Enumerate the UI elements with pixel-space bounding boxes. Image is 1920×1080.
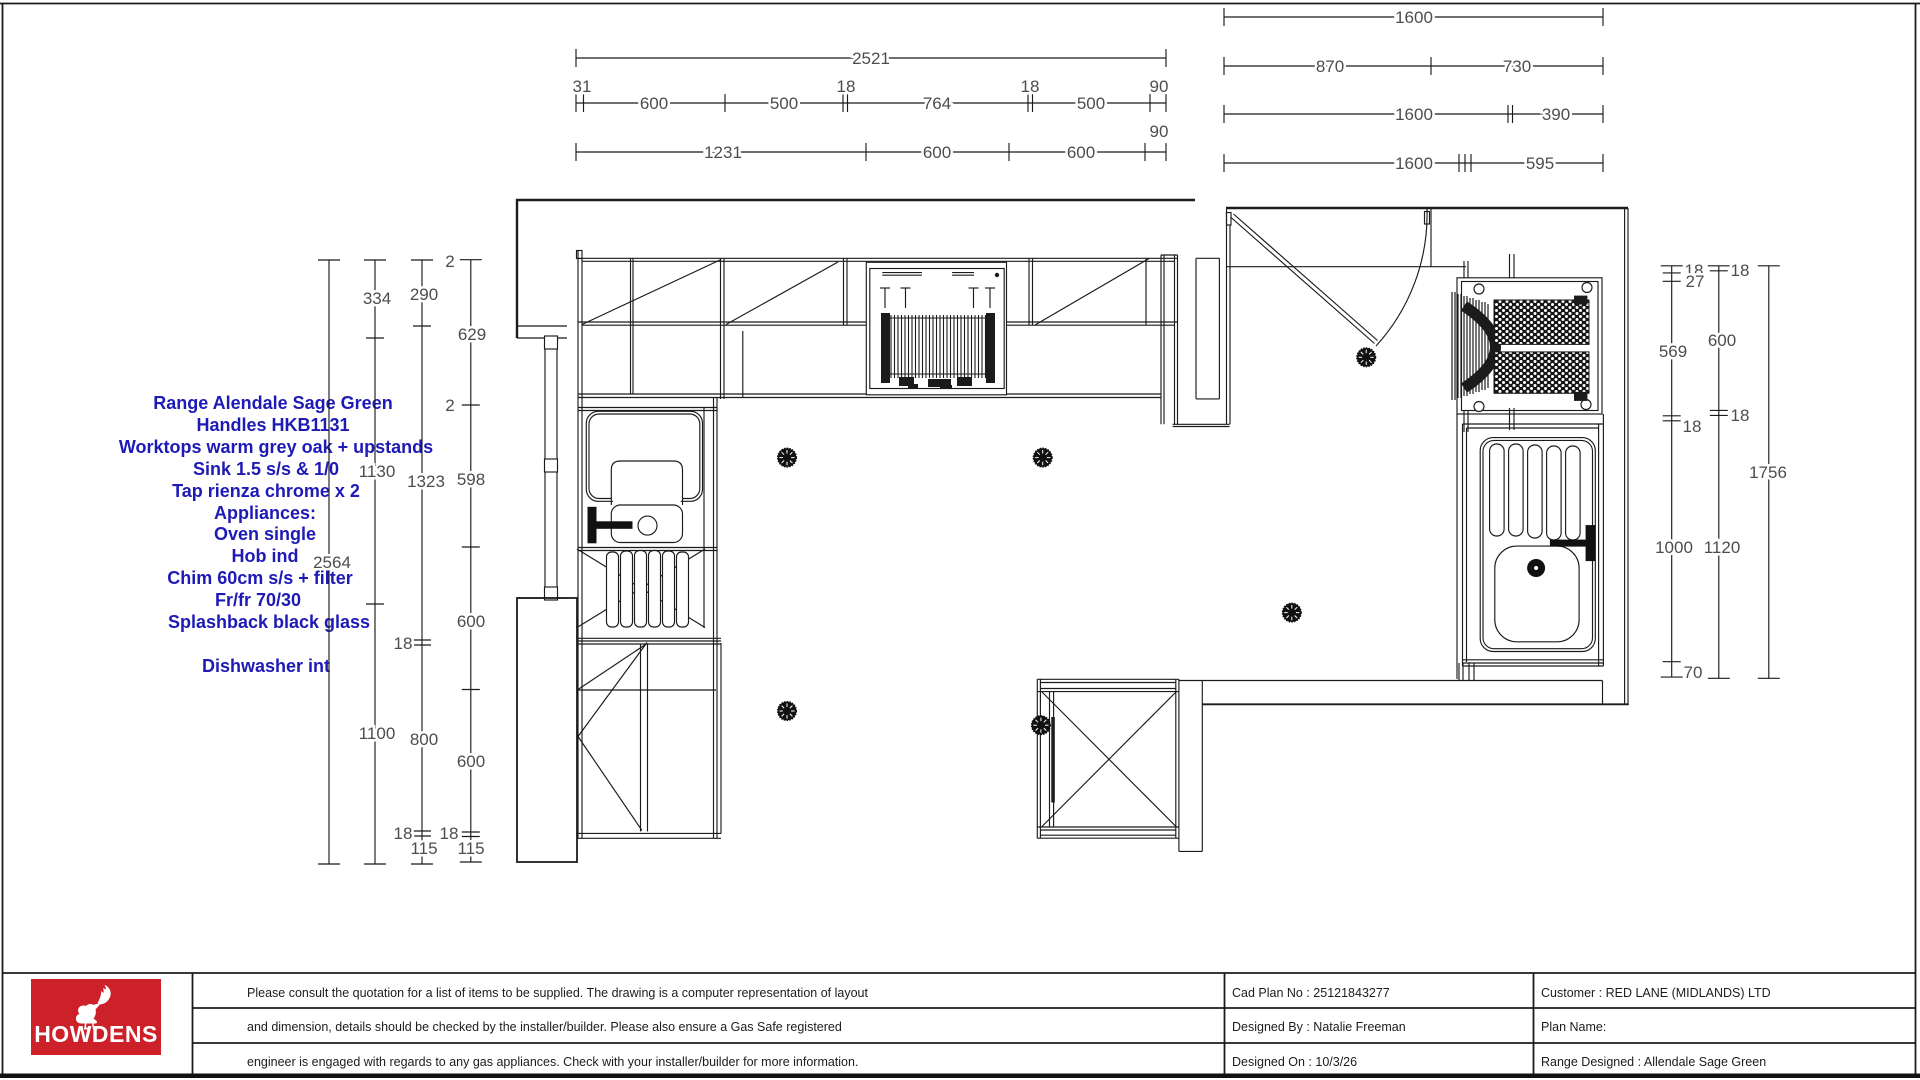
svg-text:27: 27 xyxy=(1686,272,1705,291)
svg-text:1600: 1600 xyxy=(1395,8,1433,27)
svg-text:764: 764 xyxy=(923,94,951,113)
svg-text:500: 500 xyxy=(1077,94,1105,113)
svg-text:600: 600 xyxy=(457,612,485,631)
svg-text:2: 2 xyxy=(445,252,454,271)
svg-text:Oven single: Oven single xyxy=(214,524,316,544)
svg-text:600: 600 xyxy=(1067,143,1095,162)
svg-text:600: 600 xyxy=(1708,331,1736,350)
svg-text:2: 2 xyxy=(445,396,454,415)
svg-text:500: 500 xyxy=(770,94,798,113)
svg-text:1756: 1756 xyxy=(1749,463,1787,482)
svg-text:Handles HKB1131: Handles HKB1131 xyxy=(196,415,349,435)
svg-text:18: 18 xyxy=(1021,77,1040,96)
svg-text:1600: 1600 xyxy=(1395,154,1433,173)
svg-text:Designed By : Natalie Freeman: Designed By : Natalie Freeman xyxy=(1232,1020,1406,1034)
svg-text:Cad Plan No : 25121843277: Cad Plan No : 25121843277 xyxy=(1232,986,1390,1000)
svg-text:Plan Name:: Plan Name: xyxy=(1541,1020,1606,1034)
svg-text:290: 290 xyxy=(410,285,438,304)
svg-text:Please consult the quotation f: Please consult the quotation for a list … xyxy=(247,986,868,1000)
svg-text:HOWDENS: HOWDENS xyxy=(34,1021,158,1047)
svg-text:engineer is engaged with regar: engineer is engaged with regards to any … xyxy=(247,1055,858,1069)
svg-text:and dimension, details should: and dimension, details should be checked… xyxy=(247,1020,842,1034)
svg-text:Tap rienza chrome x 2: Tap rienza chrome x 2 xyxy=(172,481,360,501)
svg-text:598: 598 xyxy=(457,470,485,489)
svg-text:Appliances:: Appliances: xyxy=(214,503,316,523)
svg-text:2564: 2564 xyxy=(313,553,351,572)
svg-text:70: 70 xyxy=(1684,663,1703,682)
svg-text:115: 115 xyxy=(457,839,484,858)
svg-text:18: 18 xyxy=(1731,406,1750,425)
svg-text:629: 629 xyxy=(458,325,486,344)
svg-text:1130: 1130 xyxy=(359,462,396,481)
svg-text:90: 90 xyxy=(1150,122,1169,141)
svg-text:Designed On : 10/3/26: Designed On : 10/3/26 xyxy=(1232,1055,1357,1069)
svg-text:115: 115 xyxy=(410,839,437,858)
svg-text:Sink 1.5 s/s & 1/0: Sink 1.5 s/s & 1/0 xyxy=(193,459,339,479)
svg-text:390: 390 xyxy=(1542,105,1570,124)
svg-text:800: 800 xyxy=(410,730,438,749)
svg-text:600: 600 xyxy=(923,143,951,162)
svg-text:18: 18 xyxy=(440,824,459,843)
svg-text:730: 730 xyxy=(1503,57,1531,76)
svg-text:2521: 2521 xyxy=(852,49,890,68)
svg-text:Hob ind: Hob ind xyxy=(232,546,299,566)
svg-text:870: 870 xyxy=(1316,57,1344,76)
svg-text:Customer : RED LANE (MIDLANDS): Customer : RED LANE (MIDLANDS) LTD xyxy=(1541,986,1771,1000)
svg-text:31: 31 xyxy=(573,77,592,96)
svg-text:1100: 1100 xyxy=(359,724,396,743)
svg-text:569: 569 xyxy=(1659,342,1687,361)
svg-text:1120: 1120 xyxy=(1704,538,1741,557)
svg-text:1600: 1600 xyxy=(1395,105,1433,124)
svg-text:600: 600 xyxy=(457,752,485,771)
svg-text:90: 90 xyxy=(1150,77,1169,96)
svg-text:600: 600 xyxy=(640,94,668,113)
svg-text:Range Alendale Sage Green: Range Alendale Sage Green xyxy=(153,393,392,413)
svg-text:18: 18 xyxy=(1683,417,1702,436)
svg-text:Splashback black glass: Splashback black glass xyxy=(168,612,370,632)
svg-text:1323: 1323 xyxy=(407,472,445,491)
svg-text:Worktops warm grey oak + upsta: Worktops warm grey oak + upstands xyxy=(119,437,433,457)
svg-text:334: 334 xyxy=(363,289,391,308)
svg-text:18: 18 xyxy=(1731,261,1750,280)
svg-text:1000: 1000 xyxy=(1655,538,1693,557)
svg-text:595: 595 xyxy=(1526,154,1554,173)
svg-text:1231: 1231 xyxy=(704,143,742,162)
svg-text:Dishwasher int: Dishwasher int xyxy=(202,656,330,676)
svg-text:Range Designed : Allendale S: Range Designed : Allendale Sage Green xyxy=(1541,1055,1766,1069)
svg-text:Fr/fr 70/30: Fr/fr 70/30 xyxy=(215,590,301,610)
svg-text:18: 18 xyxy=(394,634,413,653)
svg-text:18: 18 xyxy=(837,77,856,96)
